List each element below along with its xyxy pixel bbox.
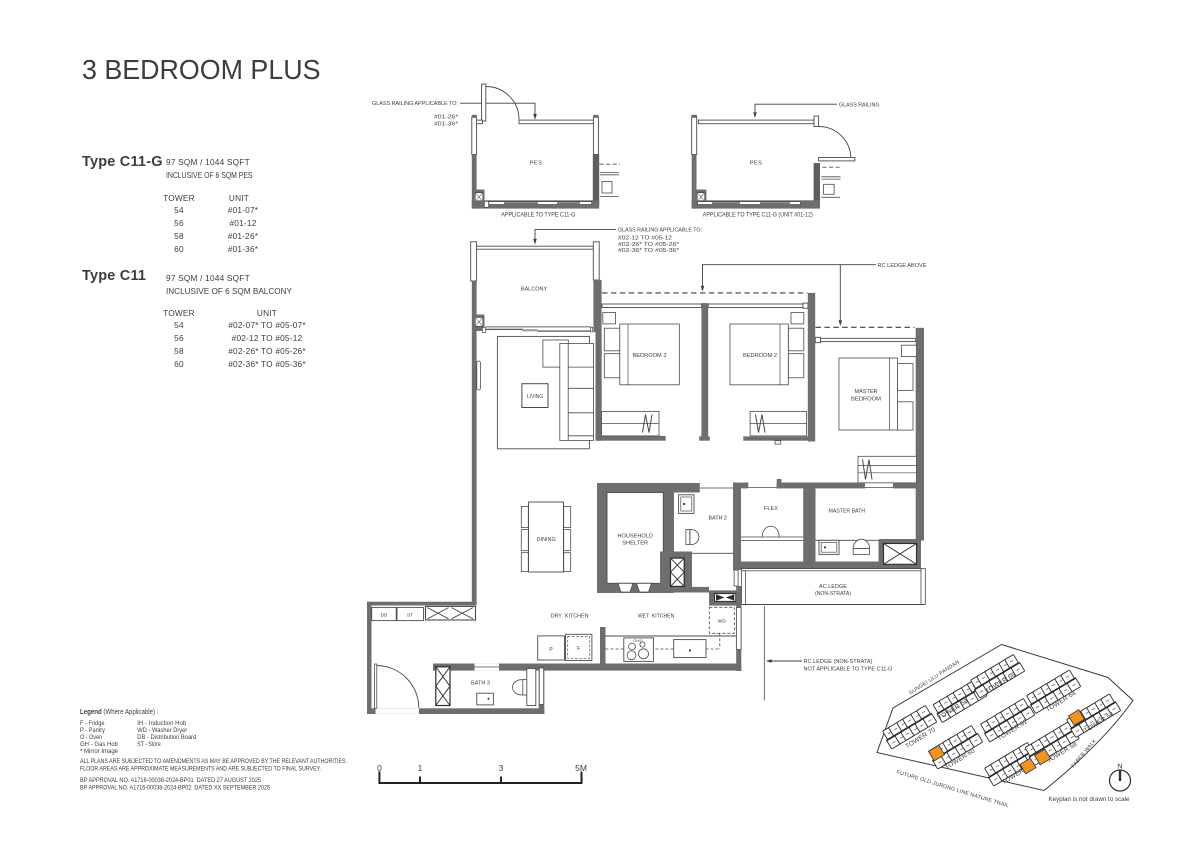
svg-text:TOWER: TOWER (163, 193, 195, 203)
svg-text:GLASS RAILING APPLICABLE TO:: GLASS RAILING APPLICABLE TO: (618, 228, 702, 234)
svg-text:#01-36*: #01-36* (434, 122, 459, 128)
svg-text:GLASS RAILING APPLICABLE TO:: GLASS RAILING APPLICABLE TO: (372, 101, 458, 107)
svg-text:HOUSEHOLD: HOUSEHOLD (617, 534, 653, 540)
svg-text:UNIT: UNIT (257, 308, 277, 318)
svg-text:5M: 5M (575, 763, 587, 773)
svg-text:INCLUSIVE OF 6 SQM PES: INCLUSIVE OF 6 SQM PES (166, 170, 253, 180)
svg-text:Type C11-G: Type C11-G (82, 154, 163, 170)
svg-text:PES: PES (750, 161, 763, 167)
svg-text:GH/O: GH/O (633, 639, 642, 643)
svg-text:#02-12 TO #05-12: #02-12 TO #05-12 (232, 333, 303, 343)
svg-text:54: 54 (174, 205, 184, 215)
svg-text:ST - Store: ST - Store (137, 741, 161, 748)
svg-text:DINING: DINING (537, 537, 556, 543)
svg-text:FLEX: FLEX (764, 506, 778, 512)
svg-text:WET KITCHEN: WET KITCHEN (638, 613, 675, 619)
svg-text:BP APPROVAL NO. A1716-00038-20: BP APPROVAL NO. A1716-00038-2024-BP02 DA… (80, 785, 270, 792)
svg-text:#02-36* TO #05-36*: #02-36* TO #05-36* (228, 359, 306, 369)
svg-text:BATH 3: BATH 3 (471, 681, 490, 687)
svg-text:LIVING: LIVING (527, 394, 543, 400)
svg-text:BEDROOM 2: BEDROOM 2 (743, 353, 777, 359)
svg-text:N: N (1117, 762, 1122, 771)
svg-text:97 SQM / 1044 SQFT: 97 SQM / 1044 SQFT (166, 273, 250, 283)
svg-text:RC LEDGE (NON-STRATA): RC LEDGE (NON-STRATA) (804, 659, 873, 665)
svg-text:ALL PLANS ARE SUBJECTED TO AME: ALL PLANS ARE SUBJECTED TO AMENDMENTS AS… (80, 758, 347, 765)
svg-text:3: 3 (499, 763, 504, 773)
svg-text:WD - Washer Dryer: WD - Washer Dryer (137, 727, 188, 734)
svg-text:BALCONY: BALCONY (521, 286, 548, 292)
svg-text:BATH 2: BATH 2 (708, 515, 727, 521)
svg-text:#02-36* TO #05-36*: #02-36* TO #05-36* (618, 248, 680, 254)
svg-text:3 BEDROOM PLUS: 3 BEDROOM PLUS (82, 54, 321, 85)
svg-text:#02-12 TO #05-12: #02-12 TO #05-12 (618, 236, 672, 242)
svg-text:DRY KITCHEN: DRY KITCHEN (551, 613, 589, 619)
svg-text:IH - Induction Hob: IH - Induction Hob (137, 720, 186, 727)
svg-text:BP APPROVAL NO. A1716-00038-20: BP APPROVAL NO. A1716-00038-2024-BP01 DA… (80, 777, 261, 784)
svg-text:97 SQM / 1044 SQFT: 97 SQM / 1044 SQFT (166, 157, 250, 167)
svg-text:* Mirror Image: * Mirror Image (80, 748, 118, 755)
svg-text:56: 56 (174, 218, 184, 228)
svg-text:1: 1 (418, 763, 423, 773)
svg-text:56: 56 (174, 333, 184, 343)
svg-text:PES: PES (530, 161, 543, 167)
svg-text:WD: WD (718, 619, 727, 625)
svg-text:TOWER: TOWER (163, 308, 195, 318)
svg-text:SHELTER: SHELTER (622, 541, 648, 547)
svg-text:54: 54 (174, 320, 184, 330)
svg-text:#01-26*: #01-26* (228, 231, 259, 241)
svg-text:RC LEDGE ABOVE: RC LEDGE ABOVE (878, 263, 927, 269)
svg-text:#02-26* TO #05-26*: #02-26* TO #05-26* (618, 242, 680, 248)
svg-text:BEDROOM 3: BEDROOM 3 (633, 353, 667, 359)
svg-text:ST: ST (407, 613, 413, 619)
svg-text:O - Oven: O - Oven (80, 734, 102, 741)
svg-text:GH - Gas Hob: GH - Gas Hob (80, 741, 118, 748)
svg-text:60: 60 (174, 359, 184, 369)
svg-text:AC LEDGE: AC LEDGE (819, 584, 848, 590)
svg-text:MASTER BATH: MASTER BATH (829, 508, 866, 514)
svg-text:FLOOR AREAS ARE APPROXIMATE ME: FLOOR AREAS ARE APPROXIMATE MEASUREMENTS… (80, 766, 321, 773)
svg-text:DB: DB (381, 613, 388, 619)
svg-text:58: 58 (174, 231, 184, 241)
svg-text:NOT APPLICABLE TO TYPE C11-G: NOT APPLICABLE TO TYPE C11-G (804, 666, 893, 672)
svg-text:APPLICABLE TO TYPE C11-G (UNIT: APPLICABLE TO TYPE C11-G (UNIT #01-12) (703, 213, 813, 219)
svg-text:#02-26* TO #05-26*: #02-26* TO #05-26* (228, 346, 306, 356)
svg-text:0: 0 (377, 763, 382, 773)
svg-text:DB - Distribution Board: DB - Distribution Board (137, 734, 196, 741)
svg-text:INCLUSIVE OF 6 SQM BALCONY: INCLUSIVE OF 6 SQM BALCONY (166, 286, 292, 296)
svg-text:#01-07*: #01-07* (228, 205, 259, 215)
svg-text:60: 60 (174, 244, 184, 254)
svg-text:#01-36*: #01-36* (228, 244, 259, 254)
svg-text:#01-26*: #01-26* (434, 115, 459, 121)
svg-text:APPLICABLE TO TYPE C11-G: APPLICABLE TO TYPE C11-G (501, 213, 575, 219)
svg-text:UNIT: UNIT (229, 193, 249, 203)
svg-text:Legend (Where Applicable) :: Legend (Where Applicable) : (80, 707, 159, 716)
svg-text:F: F (577, 646, 580, 652)
svg-text:#01-12: #01-12 (229, 218, 256, 228)
svg-text:58: 58 (174, 346, 184, 356)
svg-text:MASTER: MASTER (855, 389, 878, 395)
svg-text:Keyplan is not drawn to scale: Keyplan is not drawn to scale (1049, 796, 1130, 803)
svg-text:BEDROOM: BEDROOM (851, 397, 882, 403)
svg-text:F - Fridge: F - Fridge (80, 720, 105, 727)
svg-text:#02-07* TO #05-07*: #02-07* TO #05-07* (228, 320, 306, 330)
svg-text:P - Pantry: P - Pantry (80, 727, 106, 734)
svg-text:GLASS RAILING: GLASS RAILING (839, 103, 880, 109)
svg-text:(NON-STRATA): (NON-STRATA) (815, 591, 851, 597)
svg-text:Type C11: Type C11 (82, 268, 146, 284)
